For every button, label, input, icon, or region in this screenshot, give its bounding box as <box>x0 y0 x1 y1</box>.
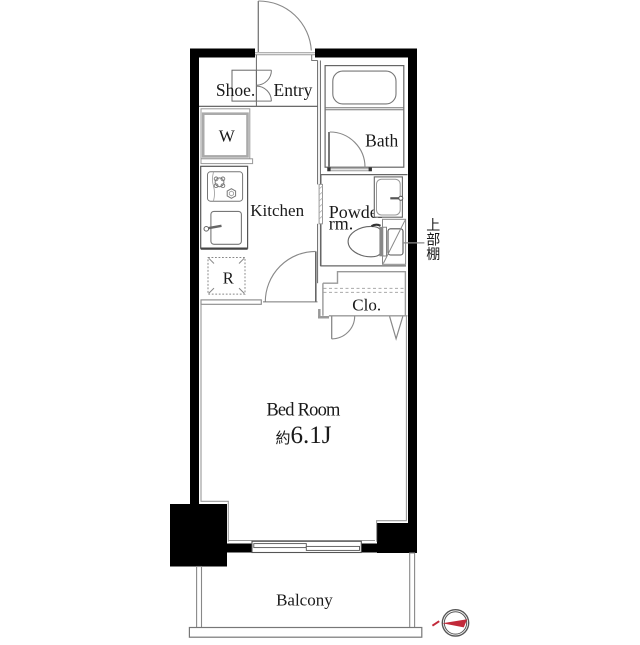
svg-text:部: 部 <box>426 233 440 249</box>
svg-text:Bath: Bath <box>365 131 398 151</box>
svg-text:上: 上 <box>426 218 440 234</box>
svg-text:W: W <box>219 127 236 146</box>
svg-text:Kitchen: Kitchen <box>250 201 304 220</box>
svg-text:Shoe.: Shoe. <box>216 80 255 100</box>
svg-text:Clo.: Clo. <box>352 296 381 315</box>
svg-text:R: R <box>223 268 234 287</box>
svg-text:棚: 棚 <box>426 247 440 263</box>
svg-text:Bed Room: Bed Room <box>266 401 341 421</box>
svg-text:Balcony: Balcony <box>276 591 333 610</box>
svg-text:rm.: rm. <box>329 213 354 233</box>
svg-text:Entry: Entry <box>274 80 313 100</box>
